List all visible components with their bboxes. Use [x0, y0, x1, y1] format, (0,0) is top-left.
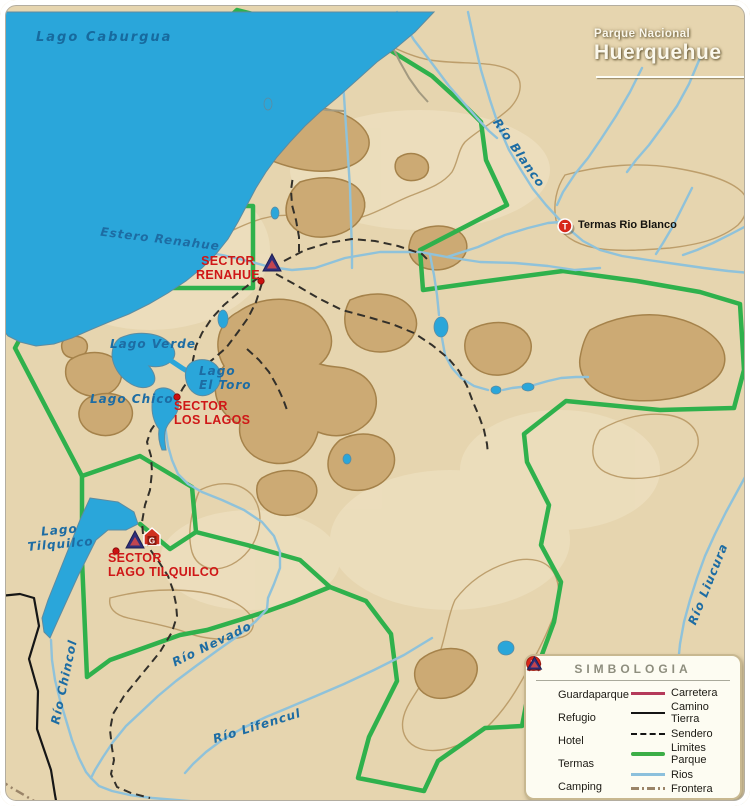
label-sector-los-lagos: SECTOR LOS LAGOS	[174, 400, 250, 427]
svg-text:T: T	[562, 222, 568, 232]
legend-point-symbols: G Guardaparque Refugio H Hotel	[535, 687, 631, 795]
title-underline	[596, 76, 750, 78]
map-title-line2: Huerquehue	[594, 41, 746, 65]
sendero-line	[631, 733, 665, 735]
legend-item-limites-parque: Limites Parque	[631, 742, 731, 766]
label-lago-el-toro: Lago El Toro	[199, 364, 252, 392]
label-lago-caburgua: Lago Caburgua	[36, 30, 172, 45]
termas-icon: T	[535, 756, 552, 772]
legend-item-hotel: H Hotel	[535, 733, 631, 749]
hotel-icon: H	[535, 733, 552, 749]
guardaparque-icon: G	[535, 687, 552, 703]
park-map: G T Lago Caburgua Estero Renahue Río Bla…	[0, 0, 750, 806]
legend-line-symbols: Carretera Camino Tierra Sendero Limites …	[631, 687, 731, 795]
legend-divider	[536, 680, 730, 681]
legend-item-refugio: Refugio	[535, 710, 631, 726]
label-termas-rio-blanco: Termas Rio Blanco	[578, 219, 677, 231]
legend-title: SIMBOLOGIA	[535, 662, 731, 676]
legend-item-camping: Camping	[535, 779, 631, 795]
label-lago-chico: Lago Chico	[90, 392, 174, 406]
refugio-icon	[535, 710, 552, 726]
carretera-line	[631, 692, 665, 695]
label-lago-tilquilco: Lago Tilquilco	[26, 520, 94, 554]
map-title-line1: Parque Nacional	[594, 28, 746, 40]
label-sector-lago-tilquilco: SECTOR LAGO TILQUILCO	[108, 552, 219, 579]
map-title: Parque Nacional Huerquehue	[594, 28, 746, 65]
rios-line	[631, 773, 665, 776]
legend-item-sendero: Sendero	[631, 728, 731, 740]
camping-icon	[535, 779, 552, 795]
legend-item-frontera: Frontera	[631, 783, 731, 795]
legend-item-camino-tierra: Camino Tierra	[631, 701, 731, 725]
svg-text:G: G	[149, 537, 155, 546]
frontera-line	[631, 787, 665, 790]
legend-item-carretera: Carretera	[631, 687, 731, 699]
legend-item-termas: T Termas	[535, 756, 631, 772]
legend-item-rios: Rios	[631, 769, 731, 781]
label-lago-verde: Lago Verde	[110, 337, 196, 351]
legend: SIMBOLOGIA G Guardaparque Refugio	[524, 654, 742, 800]
legend-item-guardaparque: G Guardaparque	[535, 687, 631, 703]
camino-tierra-line	[631, 712, 665, 714]
limites-parque-line	[631, 752, 665, 756]
label-sector-renahue: SECTOR RENAHUE	[196, 255, 260, 282]
